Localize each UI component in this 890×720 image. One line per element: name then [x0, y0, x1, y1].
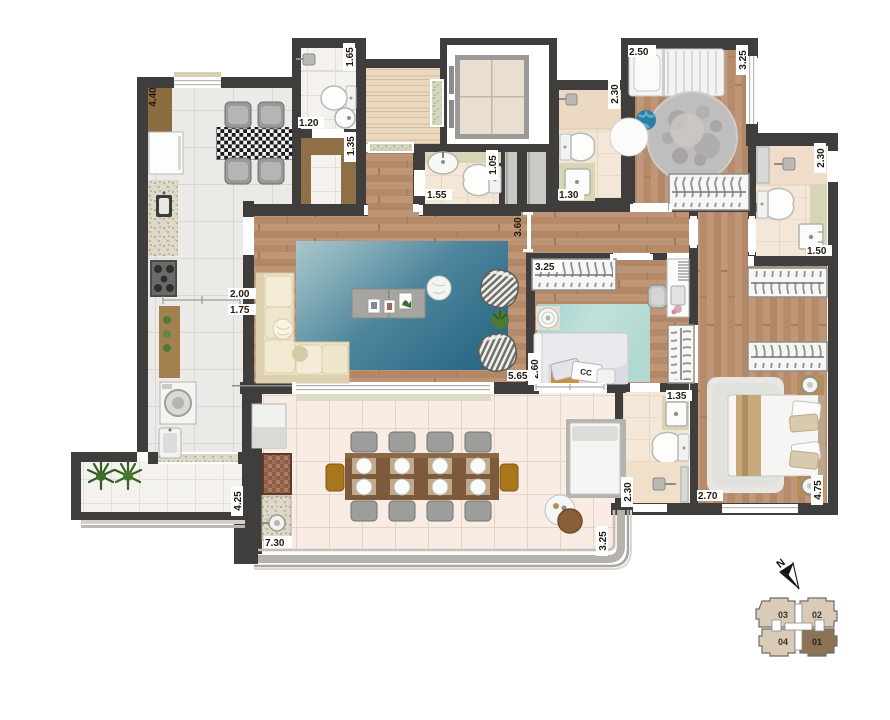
svg-text:7.30: 7.30 — [265, 538, 285, 549]
svg-text:3.60: 3.60 — [513, 217, 524, 237]
svg-text:3.25: 3.25 — [738, 50, 749, 70]
svg-text:CC: CC — [580, 367, 593, 378]
svg-text:5.65: 5.65 — [508, 371, 528, 382]
svg-text:03: 03 — [778, 610, 788, 620]
svg-text:2.00: 2.00 — [230, 289, 250, 300]
svg-text:1.30: 1.30 — [559, 190, 579, 201]
svg-text:1.35: 1.35 — [667, 391, 687, 402]
svg-text:2.70: 2.70 — [698, 491, 718, 502]
svg-text:4.75: 4.75 — [813, 480, 824, 500]
svg-text:1.05: 1.05 — [488, 155, 499, 175]
svg-text:1.55: 1.55 — [427, 190, 447, 201]
svg-text:2.30: 2.30 — [610, 84, 621, 104]
svg-text:3.25: 3.25 — [598, 531, 609, 551]
svg-text:1.75: 1.75 — [230, 305, 250, 316]
svg-text:1.50: 1.50 — [807, 246, 827, 257]
svg-text:02: 02 — [812, 610, 822, 620]
svg-text:1.65: 1.65 — [345, 47, 356, 67]
svg-text:1.20: 1.20 — [299, 118, 319, 129]
svg-text:4.25: 4.25 — [233, 491, 244, 511]
svg-text:2.30: 2.30 — [816, 148, 827, 168]
svg-text:04: 04 — [778, 637, 788, 647]
svg-text:3.25: 3.25 — [535, 262, 555, 273]
svg-text:2.50: 2.50 — [629, 47, 649, 58]
svg-text:2.30: 2.30 — [623, 482, 634, 502]
svg-text:1.35: 1.35 — [346, 136, 357, 156]
svg-text:4.40: 4.40 — [148, 87, 159, 107]
svg-text:01: 01 — [812, 637, 822, 647]
